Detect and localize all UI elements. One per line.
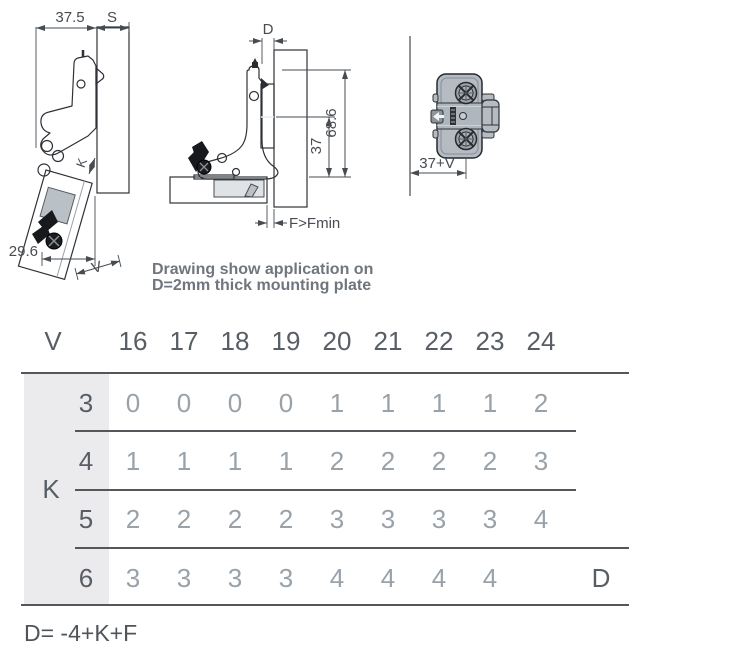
col-header: 19 <box>261 326 312 356</box>
dim-overlay-label: S <box>107 9 117 26</box>
table-value: 2 <box>465 446 516 476</box>
table-value: 0 <box>108 388 159 418</box>
arm-hole <box>250 92 259 101</box>
result-column-label: D <box>576 563 626 593</box>
col-header: 23 <box>465 326 516 356</box>
knuckle-pivot <box>38 164 50 176</box>
drawing-note: Drawing show application on D=2mm thick … <box>152 262 432 293</box>
dim-width-label: 37.5 <box>55 9 84 26</box>
table-value: 0 <box>261 388 312 418</box>
hinge-side-view-drawing: 37.5 S K 29.6 V <box>9 9 129 280</box>
door-panel <box>18 170 92 279</box>
dim-plate-label: D <box>263 21 274 38</box>
dim-bottom-label: 29.6 <box>9 243 38 260</box>
table-value: 1 <box>261 446 312 476</box>
table-value: 1 <box>363 388 414 418</box>
dim-offset-label: 37+V <box>419 155 454 172</box>
table-row: 1 1 1 1 2 2 2 2 3 <box>108 446 567 476</box>
table-row: 2 2 2 2 3 3 3 3 4 <box>108 504 567 534</box>
table-value: 4 <box>465 563 516 593</box>
table-row-rule <box>75 489 576 491</box>
drawing-note-line2: D=2mm thick mounting plate <box>152 278 432 294</box>
mounting-plate-drawing: 37+V <box>410 36 499 196</box>
col-header: 18 <box>210 326 261 356</box>
table-value: 3 <box>108 563 159 593</box>
col-header: 22 <box>414 326 465 356</box>
table-value <box>516 563 567 593</box>
table-value: 2 <box>312 446 363 476</box>
dim-crank-label: K <box>73 156 90 170</box>
table-header-row: 16 17 18 19 20 21 22 23 24 <box>108 326 567 356</box>
dim-reveal-label: V <box>90 258 104 277</box>
center-hole <box>460 113 467 120</box>
table-value: 2 <box>363 446 414 476</box>
table-value: 0 <box>159 388 210 418</box>
arm-hole <box>77 80 85 88</box>
table-value: 2 <box>159 504 210 534</box>
row-label: 4 <box>61 446 111 476</box>
knuckle-pivot <box>42 141 53 152</box>
screw-top <box>456 83 477 104</box>
table-value: 3 <box>210 563 261 593</box>
table-value: 2 <box>210 504 261 534</box>
plate-wedge <box>261 78 269 90</box>
col-header: 21 <box>363 326 414 356</box>
tab-bump <box>433 130 438 138</box>
table-bottom-rule <box>21 604 629 606</box>
row-label: 6 <box>61 563 111 593</box>
table-value: 1 <box>414 388 465 418</box>
pivot <box>233 169 240 176</box>
table-value: 2 <box>108 504 159 534</box>
plate-wing <box>482 100 499 132</box>
table-value: 2 <box>516 388 567 418</box>
dim-screw-label: 37 <box>308 138 325 155</box>
table-row: 0 0 0 0 1 1 1 1 2 <box>108 388 567 418</box>
col-header: 16 <box>108 326 159 356</box>
table-top-rule <box>21 372 629 374</box>
table-row-rule <box>75 547 629 549</box>
row-group-label: K <box>26 474 76 504</box>
screw-bottom <box>456 129 477 150</box>
table-value: 1 <box>312 388 363 418</box>
screw-head <box>252 62 258 68</box>
dim-gap-label: F>Fmin <box>289 215 340 232</box>
table-value: 3 <box>159 563 210 593</box>
table-value: 3 <box>414 504 465 534</box>
table-value: 1 <box>210 446 261 476</box>
table-value: 4 <box>516 504 567 534</box>
table-row-rule <box>75 430 576 432</box>
formula-text: D= -4+K+F <box>24 620 137 647</box>
row-label: 3 <box>61 388 111 418</box>
table-value: 3 <box>363 504 414 534</box>
table-value: 2 <box>414 446 465 476</box>
table-value: 4 <box>312 563 363 593</box>
table-value: 1 <box>159 446 210 476</box>
cabinet-panel <box>274 50 307 207</box>
table-value: 3 <box>516 446 567 476</box>
table-value: 3 <box>312 504 363 534</box>
col-header: 24 <box>516 326 567 356</box>
cabinet-panel <box>97 27 129 193</box>
col-header: 17 <box>159 326 210 356</box>
table-corner-header: V <box>28 326 78 356</box>
table-value: 3 <box>261 563 312 593</box>
dim-height-label: 68.6 <box>323 108 340 137</box>
hinge-arm <box>41 56 96 155</box>
drawing-note-line1: Drawing show application on <box>152 262 432 278</box>
table-value: 4 <box>363 563 414 593</box>
knuckle-pivot <box>53 151 64 162</box>
table-value: 2 <box>261 504 312 534</box>
table-value: 1 <box>465 388 516 418</box>
table-row: 3 3 3 3 4 4 4 4 <box>108 563 567 593</box>
table-value: 3 <box>465 504 516 534</box>
catalog-page: 37.5 S K 29.6 V <box>0 0 741 655</box>
tab-bump <box>433 94 438 102</box>
row-label: 5 <box>61 504 111 534</box>
table-value: 1 <box>108 446 159 476</box>
table-value: 0 <box>210 388 261 418</box>
table-value: 4 <box>414 563 465 593</box>
mounting-plate <box>261 84 274 148</box>
col-header: 20 <box>312 326 363 356</box>
hinge-section-view-drawing: D 68.6 37 F>Fmin <box>170 21 351 232</box>
